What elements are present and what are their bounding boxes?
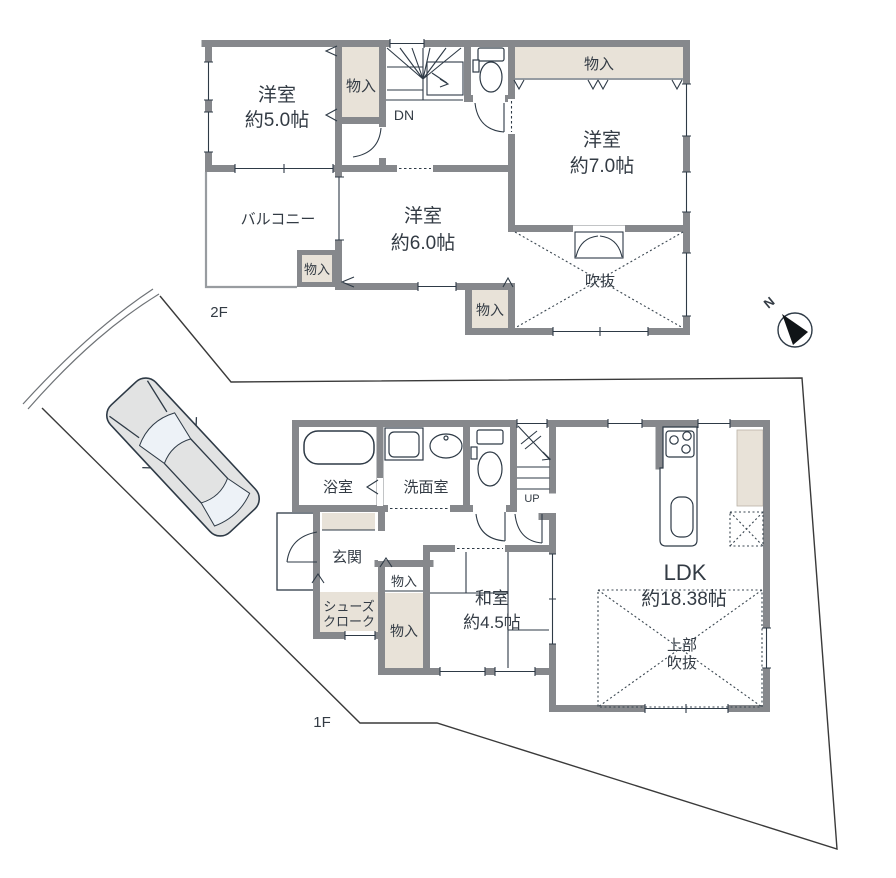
room-label-upper-void-1: 上部	[667, 637, 697, 654]
closet-label-2f-c: 物入	[304, 262, 330, 277]
room-label-2f-south-size: 約6.0帖	[391, 232, 455, 254]
floor-label-2f: 2F	[210, 304, 228, 321]
room-label-entrance: 玄関	[332, 549, 362, 566]
north-compass: N	[761, 294, 812, 347]
room-label-ldk-size: 約18.38帖	[641, 588, 727, 610]
kitchen-counter	[660, 427, 697, 546]
entrance-step-fill	[322, 513, 375, 530]
car	[97, 368, 270, 546]
room-label-2f-west-size: 約5.0帖	[245, 109, 309, 131]
room-label-ldk-name: LDK	[664, 560, 707, 585]
stairs-1f	[517, 426, 550, 489]
stairs-label-dn: DN	[394, 107, 414, 123]
closet-label-2f-b: 物入	[584, 56, 614, 73]
tatami-lines	[430, 552, 549, 668]
floorplan-canvas: 洋室 約5.0帖 物入 DN 物入 洋室 約7.0帖 バルコニー 洋室 約6.0…	[0, 0, 896, 878]
room-label-japanese-size: 約4.5帖	[463, 613, 521, 632]
entrance-porch	[277, 513, 315, 590]
bathtub	[304, 431, 374, 464]
kitchen-sink	[671, 497, 693, 537]
room-label-shoe-closet-1: シューズ	[323, 599, 374, 614]
floorplan-page: 洋室 約5.0帖 物入 DN 物入 洋室 約7.0帖 バルコニー 洋室 約6.0…	[0, 0, 896, 878]
room-label-bathroom: 浴室	[323, 479, 353, 496]
closet-label-1f-b: 物入	[390, 623, 418, 639]
room-label-washroom: 洗面室	[403, 479, 448, 496]
refrigerator-space	[730, 512, 763, 546]
room-label-2f-west-name: 洋室	[258, 84, 296, 106]
stairs-2f	[386, 48, 463, 100]
washing-machine	[385, 428, 423, 460]
lot-boundary-line	[42, 296, 837, 849]
room-label-japanese-name: 和室	[475, 589, 509, 608]
floor-label-1f: 1F	[313, 714, 331, 731]
kitchen-side-counter	[737, 430, 763, 506]
room-label-2f-east-name: 洋室	[583, 129, 621, 151]
room-label-2f-void: 吹抜	[585, 273, 615, 290]
toilet-2f-fixture	[473, 48, 504, 92]
room-label-upper-void-2: 吹抜	[667, 655, 697, 672]
closet-label-2f-d: 物入	[476, 302, 504, 318]
room-label-2f-east-size: 約7.0帖	[570, 155, 634, 177]
north-label: N	[761, 294, 778, 312]
floor-2-plan: 洋室 約5.0帖 物入 DN 物入 洋室 約7.0帖 バルコニー 洋室 約6.0…	[204, 39, 691, 336]
room-label-2f-south-name: 洋室	[404, 205, 442, 227]
toilet-1f-fixture	[471, 430, 503, 486]
room-label-balcony: バルコニー	[241, 211, 316, 228]
closet-label-1f-a: 物入	[391, 574, 417, 589]
balcony-railing	[206, 172, 297, 287]
washbasin	[430, 434, 462, 458]
closet-label-2f-a: 物入	[346, 78, 376, 95]
stairs-label-up: UP	[524, 493, 539, 505]
room-label-shoe-closet-2: クローク	[323, 614, 375, 629]
floor-1-plan: 浴室 洗面室 UP 玄関 シューズ クローク 物入 物入 和室 約4.5帖 LD…	[277, 419, 771, 731]
car-body	[101, 372, 265, 542]
